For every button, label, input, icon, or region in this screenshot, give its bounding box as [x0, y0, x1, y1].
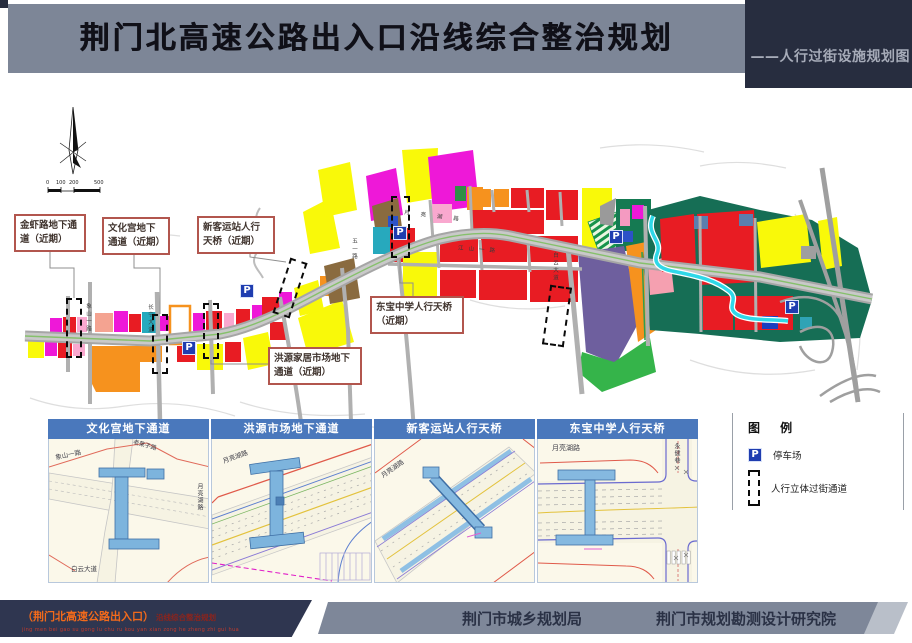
detail-panel-xinkeyunzhan: 新客运站人行天桥 月亮湖路 — [374, 419, 535, 583]
parking-icon: P — [785, 300, 799, 314]
parking-icon: P — [748, 448, 762, 462]
pedestrian-crossing-icon — [748, 470, 760, 506]
detail-panel-wenhuagong: 文化宫地下通道 象山一路 老莱子路 白云大道 月亮湖路 — [48, 419, 209, 583]
footer-orgs-bar: 荆门市城乡规划局 荆门市规划勘测设计研究院 — [318, 602, 878, 634]
legend: 图 例 P 停车场 人行立体过街通道 — [732, 413, 903, 510]
legend-item-label: 人行立体过街通道 — [771, 481, 847, 495]
detail-panels: 文化宫地下通道 象山一路 老莱子路 白云大道 月亮湖路 — [48, 419, 698, 583]
panel-title: 文化宫地下通道 — [48, 419, 209, 439]
legend-item-label: 停车场 — [773, 448, 802, 462]
north-arrow-icon — [60, 107, 86, 174]
road-label: 白云大道 — [551, 252, 559, 282]
panel-map: 月亮湖路 — [374, 439, 535, 583]
legend-item-parking: P 停车场 — [748, 448, 903, 462]
callout-jinxia-underpass: 金虾路地下通道（近期） — [14, 214, 86, 252]
panel-title: 东宝中学人行天桥 — [537, 419, 698, 439]
callout-wenhuagong-underpass: 文化宫地下通道（近期） — [102, 217, 170, 255]
pedestrian-crossing-marker — [66, 298, 82, 358]
parking-icon: P — [240, 284, 254, 298]
panel-title: 新客运站人行天桥 — [374, 419, 535, 439]
street-label: 月亮湖路 — [195, 483, 204, 511]
panel-map: 月亮湖路 永健巷 — [537, 439, 698, 583]
callout-dongbao-footbridge: 东宝中学人行天桥（近期） — [370, 296, 464, 334]
detail-panel-dongbao: 东宝中学人行天桥 — [537, 419, 698, 583]
org-name-right: 荆门市规划勘测设计研究院 — [656, 608, 836, 629]
street-label: 月亮湖路 — [552, 443, 580, 453]
project-title-rest: 沿线综合整治规划 — [156, 613, 216, 622]
panel-map: 象山一路 老莱子路 白云大道 月亮湖路 — [48, 439, 209, 583]
planning-poster: 荆门北高速公路出入口沿线综合整治规划 ——人行过街设施规划图 — [0, 0, 912, 643]
callout-xinkeyunzhan-footbridge: 新客运站人行天桥（近期） — [197, 216, 275, 254]
panel-map: 月亮湖路 — [211, 439, 372, 583]
divider — [903, 413, 904, 510]
pedestrian-crossing-marker — [203, 303, 219, 359]
footer-project-block: （荆门北高速公路出入口）沿线综合整治规划 jing men bei gao su… — [0, 600, 312, 637]
scale-label: 0 — [46, 180, 49, 186]
callout-hongyuan-underpass: 洪源家居市场地下通道（近期） — [268, 347, 362, 385]
parking-icon: P — [393, 226, 407, 240]
panel-title: 洪源市场地下通道 — [211, 419, 372, 439]
project-title-bracket: （荆门北高速公路出入口） — [22, 610, 154, 623]
org-name-left: 荆门市城乡规划局 — [462, 608, 582, 629]
scale-label: 500 — [94, 180, 104, 186]
road-label: 五一路 — [350, 238, 358, 261]
pedestrian-crossing-marker — [152, 314, 168, 374]
street-label: 白云大道 — [71, 563, 97, 573]
scale-bar — [48, 187, 100, 193]
road-label: 象山一路 — [84, 303, 92, 333]
parking-icon: P — [609, 230, 623, 244]
legend-item-crossing: 人行立体过街通道 — [748, 470, 903, 506]
parking-icon: P — [182, 341, 196, 355]
legend-title: 图 例 — [748, 419, 903, 436]
project-title-pinyin: jing men bei gao su gong lu chu ru kou y… — [22, 627, 312, 633]
scale-label: 200 — [69, 180, 79, 186]
scale-label: 100 — [56, 180, 66, 186]
street-label: 永健巷 — [672, 443, 681, 464]
detail-panel-hongyuan: 洪源市场地下通道 — [211, 419, 372, 583]
